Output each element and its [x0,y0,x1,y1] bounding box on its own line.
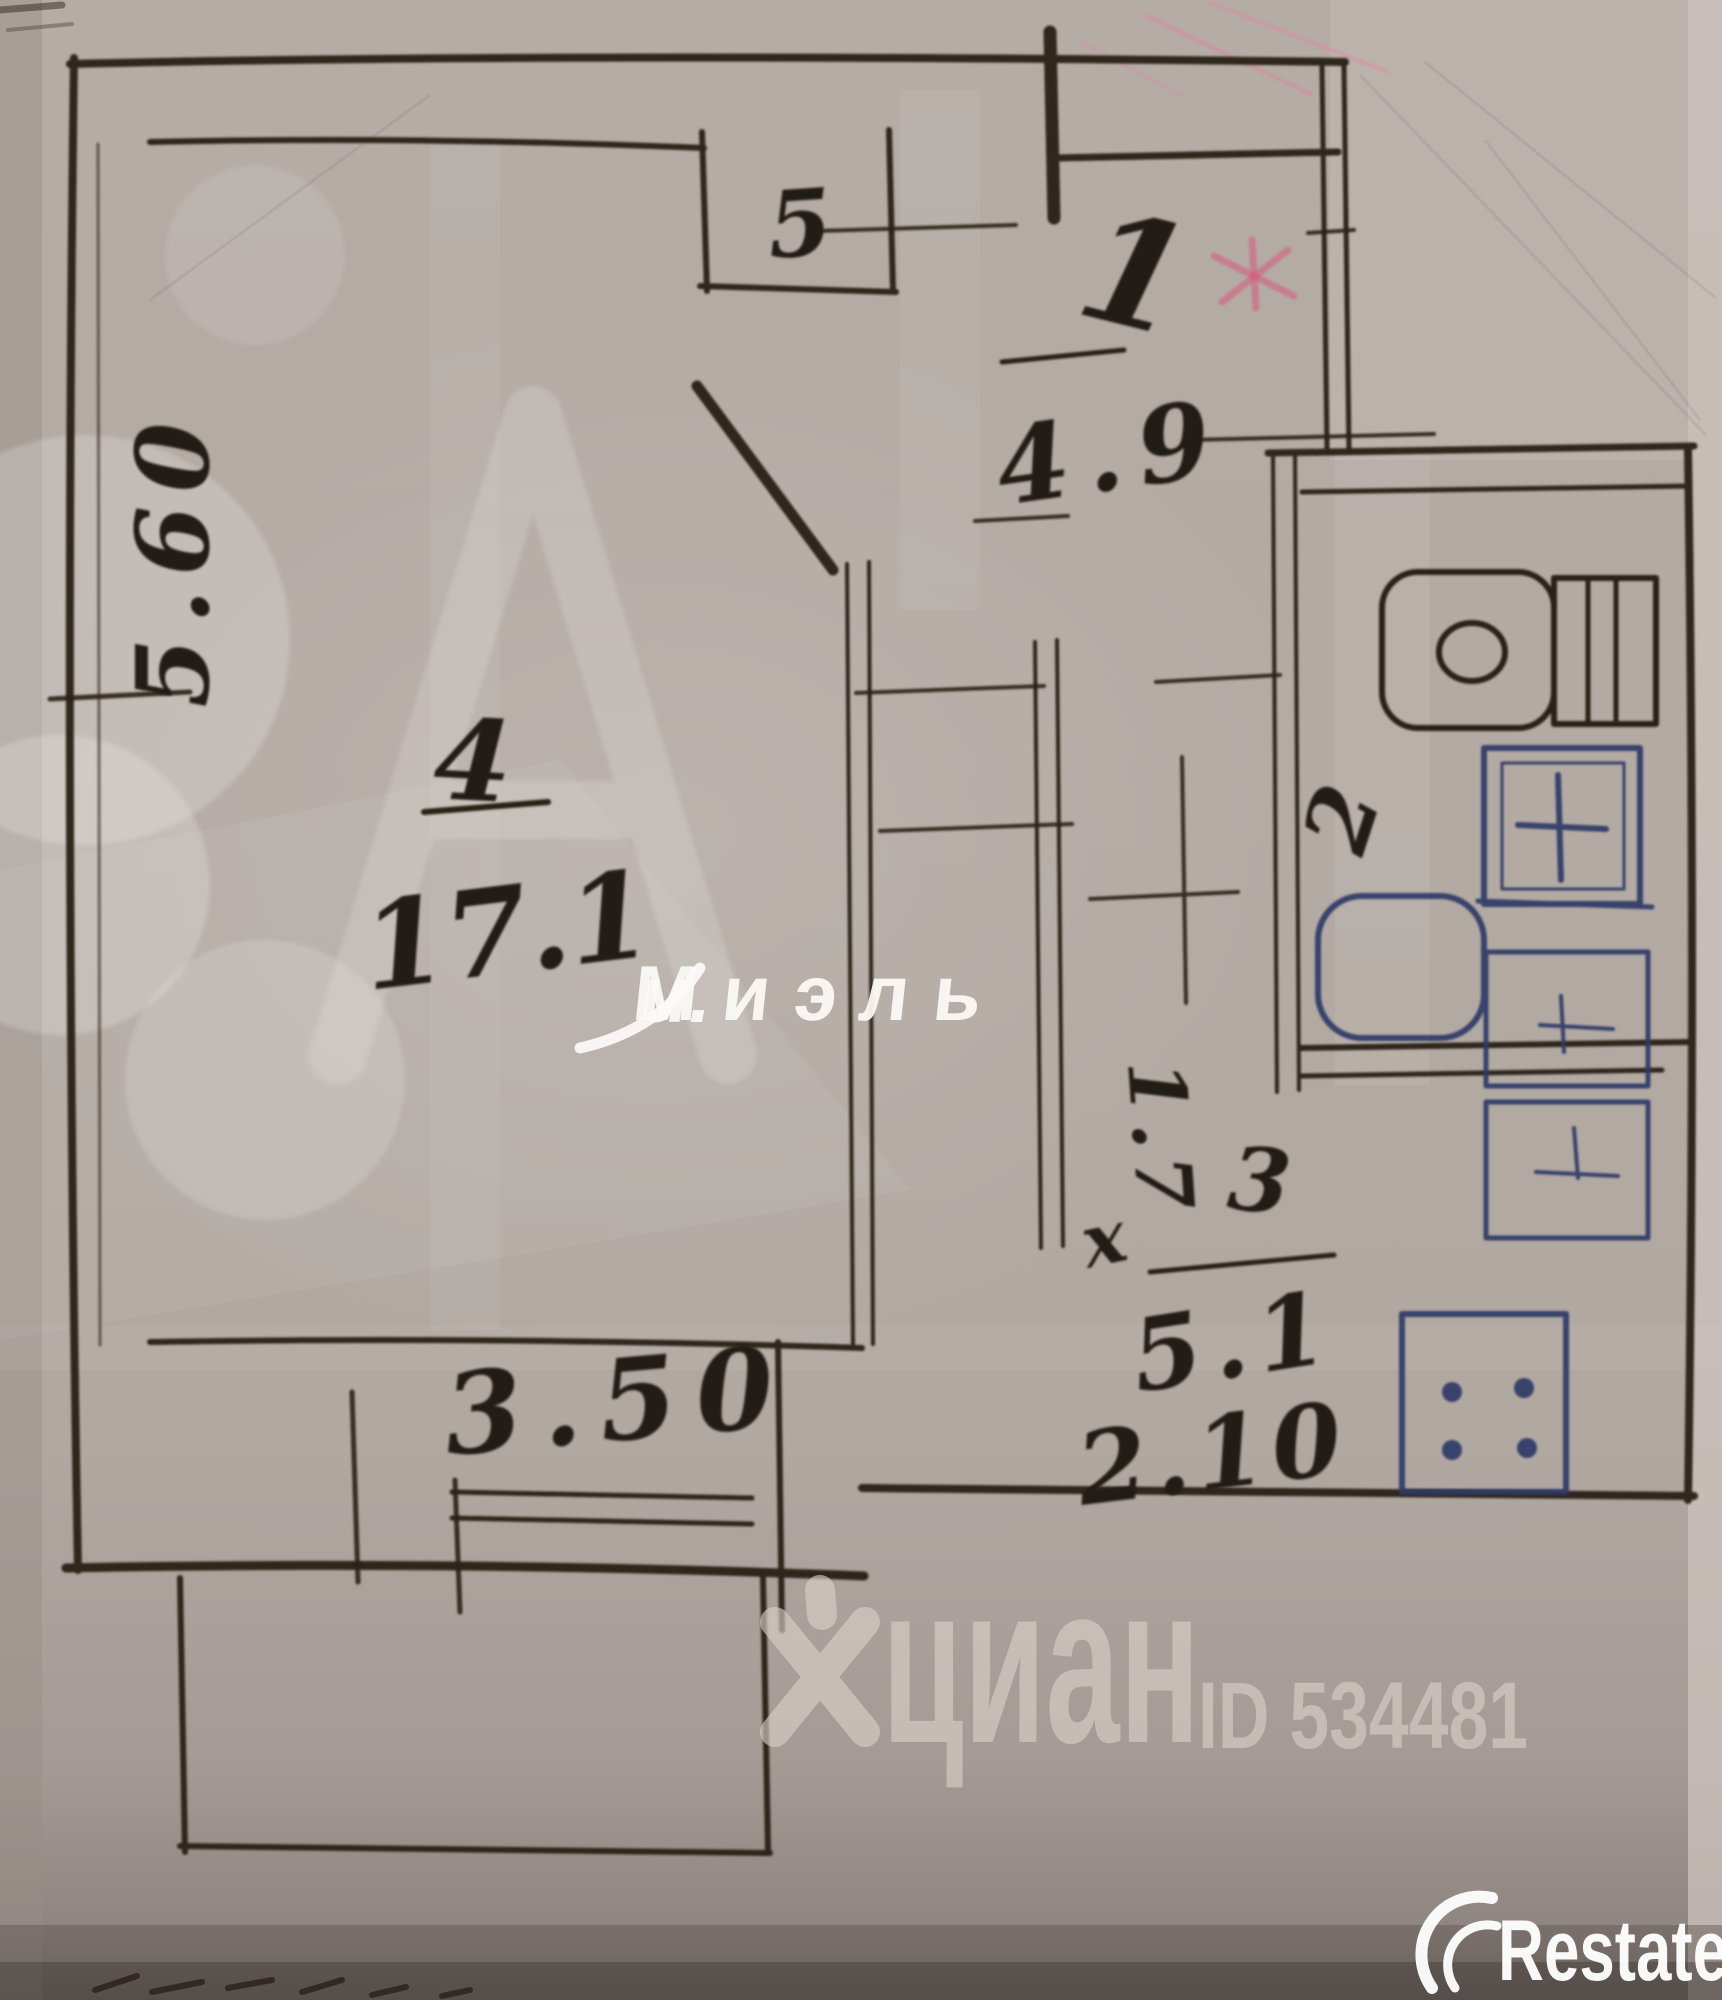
room3-width: 2.10 [1070,1379,1348,1529]
cian-id-text: ID 534481 [1198,1663,1528,1769]
fixture-mark [1540,1025,1613,1029]
room5-number: 5 [764,168,835,280]
wall-room4-top [150,140,704,148]
room1-area: 4.9 [988,377,1218,530]
miel-logo-text: Миэль [629,949,986,1037]
window-line-a [452,1492,752,1498]
pink-asterisk [1214,240,1294,308]
washbasin-cross-h [1518,825,1606,829]
toilet-tank [1554,578,1656,724]
tick [1156,675,1280,682]
window-jamb [455,1480,460,1612]
restate-text: Restate [1498,1903,1722,1999]
pink-scribble [1082,42,1182,96]
wall-right-outer [1688,450,1692,1500]
window-line-b [452,1518,752,1524]
wall-stub-below [778,1342,782,1630]
closet-right [889,130,893,291]
wall-diagonal [697,386,833,570]
tick [880,824,1072,831]
toilet-seat [1439,623,1505,681]
cian-text: циан [882,1537,1200,1791]
closet-bottom [700,286,896,292]
kitchen-sink [1486,1102,1648,1238]
tick [856,686,1044,693]
room1-number: 1 [1063,176,1207,372]
balcony-left [180,1578,185,1852]
wall-top-outer [70,57,1345,64]
miel-watermark: и. Миэль [580,949,986,1048]
bath-wall-b [1295,456,1299,1090]
scanned-floorplan-photo: 5 1 4.9 5.60 4 17.1 3.50 2 1.7 х 3 5.1 2… [0,0,1722,2000]
bath-wall-a [1273,456,1277,1092]
room3-number: 3 [1224,1125,1296,1235]
stove-burner [1517,1438,1537,1458]
scan-band [900,90,980,610]
stove-burner [1514,1378,1534,1398]
stove-burner [1442,1440,1462,1460]
wall-top-stub [1050,32,1054,218]
sink-mark [1536,1172,1618,1176]
scan-band [1335,455,1430,1085]
corridor-right-b [1057,640,1063,1246]
wall-room4-left-inner [98,144,100,1345]
balcony-bottom [180,1846,770,1853]
pink-scribble [1145,15,1312,95]
floor-plan-svg: 5 1 4.9 5.60 4 17.1 3.50 2 1.7 х 3 5.1 2… [0,0,1722,2000]
wall-hall-top-inner [1054,152,1338,158]
closet-left [702,132,707,291]
room4-depth: 5.60 [114,423,232,708]
cian-logo-icon [775,1590,865,1732]
kitchen-fixture-upper [1486,952,1648,1086]
corridor-right-a [1035,642,1041,1248]
cian-watermark: циан ID 534481 [775,1537,1528,1791]
tick [1090,892,1238,899]
stove-burner [1442,1382,1462,1402]
room4-width: 3.50 [439,1323,779,1482]
corridor-left-a [847,564,853,1344]
balcony-door-jamb [352,1392,358,1582]
watermark-circle [165,165,345,345]
wall-bottom-outer [66,1565,864,1576]
dimension-line-vertical [1182,757,1186,1003]
sink-mark [1574,1128,1578,1178]
corridor-dimension: 1.7 [1109,1057,1210,1213]
wall-right-upper-a [1322,66,1327,450]
